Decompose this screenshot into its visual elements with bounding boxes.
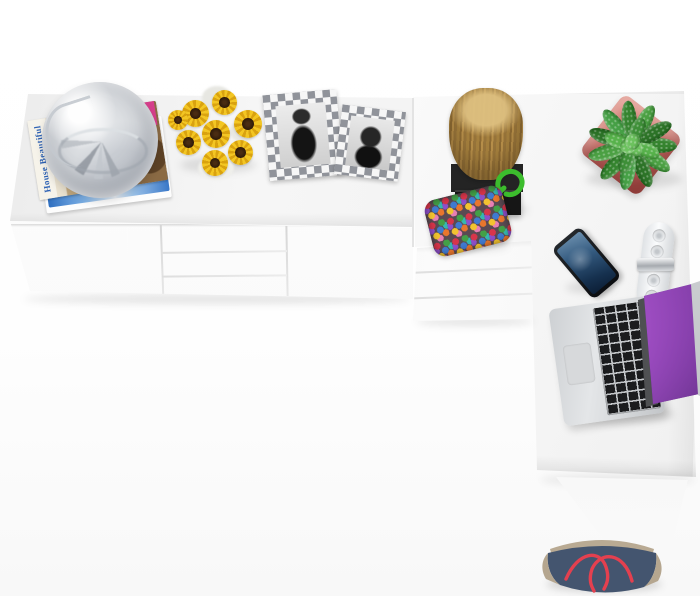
sunflower: [234, 110, 262, 138]
sunflower: [202, 150, 228, 176]
power-strip-socket: [650, 244, 664, 258]
power-strip-socket: [652, 228, 666, 242]
frame1-photo: [275, 102, 330, 168]
sunflower: [228, 140, 253, 165]
sunflower: [212, 90, 237, 115]
power-strip-metal-band: [637, 258, 674, 272]
frame2-photo: [345, 116, 395, 171]
sideboard-door-seam-left: [160, 225, 164, 295]
sideboard-door-seam-right: [285, 226, 288, 296]
glass-sphere: [42, 82, 158, 198]
laptop-trackpad: [562, 342, 595, 386]
desk-drawer-seam-1: [414, 266, 534, 273]
desk-sideboard-seam: [412, 98, 414, 247]
sunflower: [202, 120, 230, 148]
tote-bag: [536, 522, 668, 596]
power-strip-socket: [646, 273, 660, 287]
desk-drawer-seam-2: [413, 293, 534, 300]
photo-frame-1: [262, 89, 343, 181]
potted-plant: [580, 92, 684, 200]
sideboard-drawer-seam-2: [162, 274, 287, 277]
photo-frame-2: [334, 104, 406, 181]
sunflower: [168, 110, 188, 130]
sunflower: [176, 130, 201, 155]
bag-body: [548, 546, 657, 593]
sideboard-drawer-seam-1: [162, 250, 287, 254]
scene: House Beautiful: [0, 0, 700, 596]
sunflower-bouquet: [168, 84, 268, 188]
